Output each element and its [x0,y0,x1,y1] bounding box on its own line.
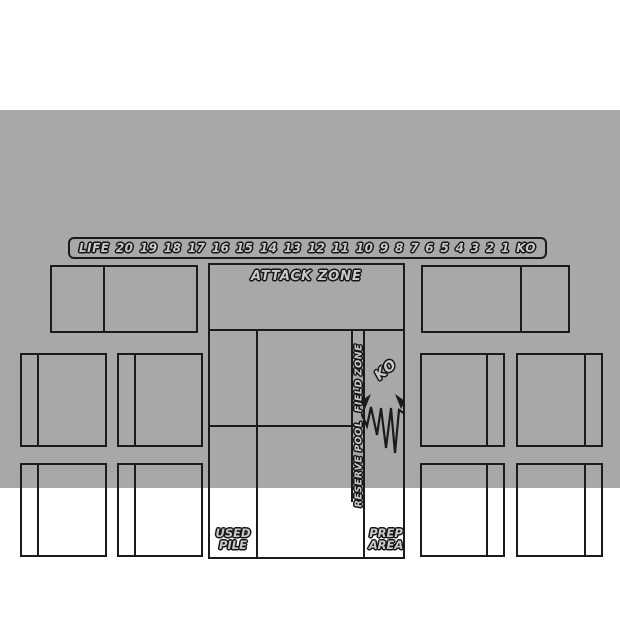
slot-divider [584,463,586,557]
card-slot-left-1[interactable] [20,353,107,447]
ko-zone-burst-edge [361,391,405,463]
life-value-17[interactable]: 17 [188,241,206,255]
life-value-14[interactable]: 14 [260,241,278,255]
playmat-image: LIFE 2019181716151413121110987654321KO [0,0,620,620]
slot-divider [37,463,39,557]
life-value-18[interactable]: 18 [164,241,182,255]
life-value-12[interactable]: 12 [308,241,326,255]
card-slot-top-right[interactable] [421,265,570,333]
slot-divider [486,463,488,557]
left-column-divider [256,329,258,557]
used-pile-zone[interactable]: USED PILE [210,527,256,552]
slot-divider [520,265,522,333]
life-value-16[interactable]: 16 [212,241,230,255]
card-slot-left-2[interactable] [117,353,203,447]
life-value-20[interactable]: 20 [116,241,134,255]
life-value-KO[interactable]: KO [516,241,536,255]
card-slot-right-1[interactable] [420,353,505,447]
slot-divider [37,353,39,447]
life-value-15[interactable]: 15 [236,241,254,255]
life-track-label: LIFE [79,241,110,255]
life-value-5[interactable]: 5 [440,241,449,255]
slot-divider [134,353,136,447]
life-value-11[interactable]: 11 [332,241,350,255]
life-value-13[interactable]: 13 [284,241,302,255]
slot-divider [584,353,586,447]
attack-zone-divider [210,329,403,331]
prep-area-label-line2: AREA [365,539,407,552]
slot-divider [103,265,105,333]
card-slot-right-2[interactable] [516,353,603,447]
card-slot-top-left[interactable] [50,265,198,333]
card-slot-left-3[interactable] [20,463,107,557]
slot-divider [486,353,488,447]
prep-area-zone[interactable]: PREP AREA [365,527,407,552]
life-value-4[interactable]: 4 [456,241,465,255]
card-slot-left-4[interactable] [117,463,203,557]
card-slot-right-4[interactable] [516,463,603,557]
card-slot-right-3[interactable] [420,463,505,557]
central-board: ATTACK ZONE FIELD ZONE RESERVE POOL KO U… [208,263,405,559]
used-pile-label-line2: PILE [210,539,256,552]
life-value-3[interactable]: 3 [471,241,480,255]
life-track: LIFE 2019181716151413121110987654321KO [68,237,547,259]
life-value-10[interactable]: 10 [356,241,374,255]
middle-divider [210,425,365,427]
ko-zone-label: KO [372,356,401,384]
life-value-9[interactable]: 9 [380,241,389,255]
slot-divider [134,463,136,557]
life-value-2[interactable]: 2 [486,241,495,255]
life-value-7[interactable]: 7 [410,241,419,255]
life-value-1[interactable]: 1 [501,241,510,255]
life-value-19[interactable]: 19 [140,241,158,255]
life-value-6[interactable]: 6 [425,241,434,255]
attack-zone-label: ATTACK ZONE [210,269,403,284]
life-value-8[interactable]: 8 [395,241,404,255]
playmat-background: LIFE 2019181716151413121110987654321KO [0,110,620,488]
